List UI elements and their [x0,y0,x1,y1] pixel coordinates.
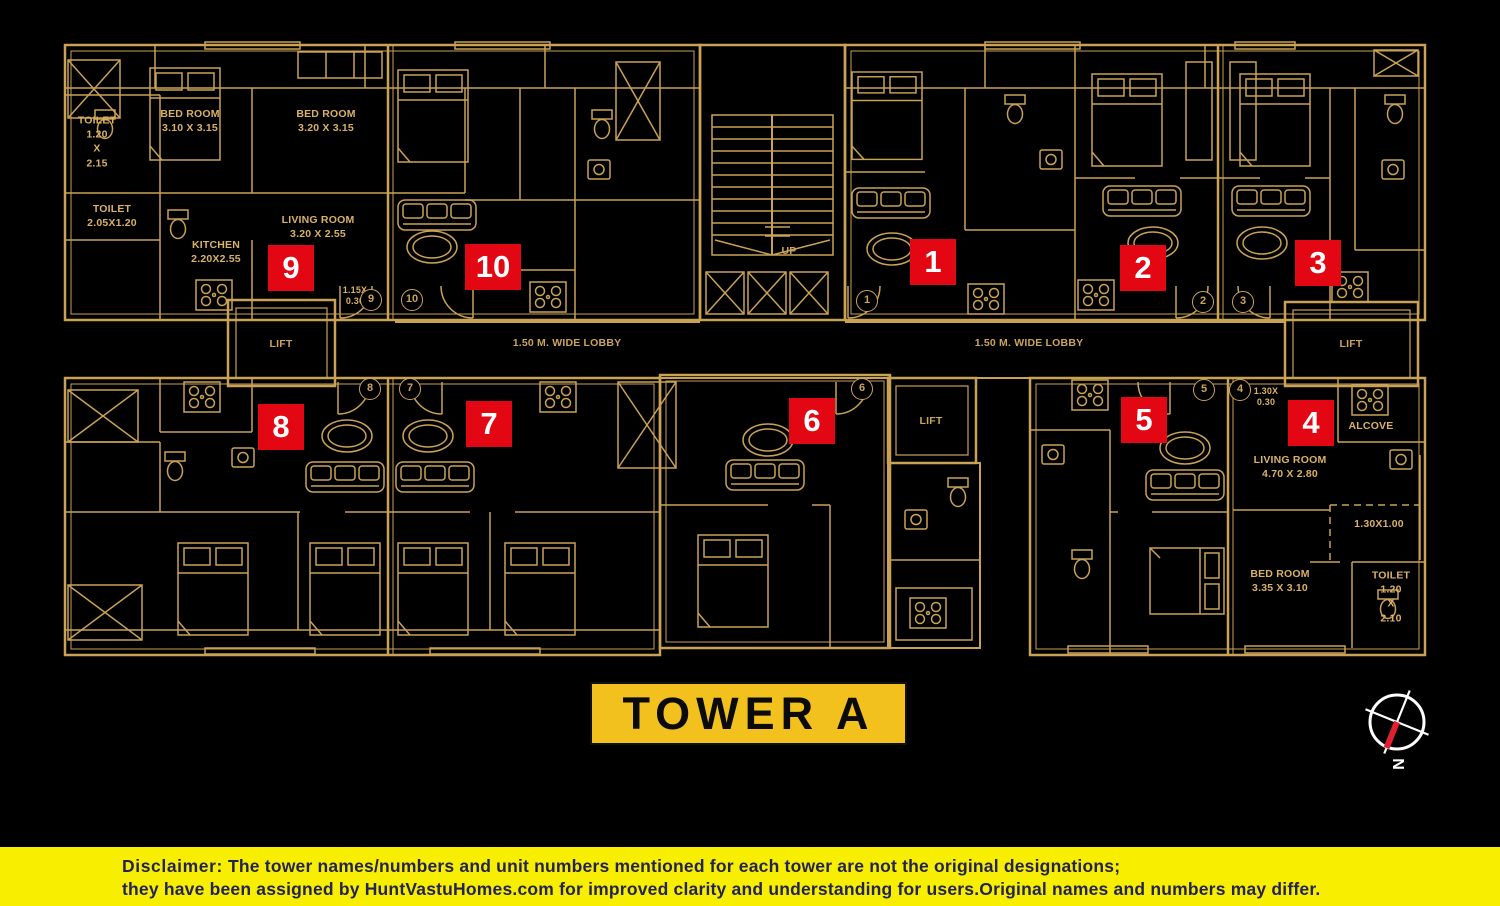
room-label-toilet-unit9-small: TOILET 2.05X1.20 [87,202,137,230]
room-label-toilet-unit9-top: TOILET 1.20 X 2.15 [78,114,116,171]
door-marker-10: 10 [401,289,423,311]
door-marker-1: 1 [856,290,878,312]
door-marker-6: 6 [851,378,873,400]
room-label-kitchen-unit9: KITCHEN 2.20X2.55 [191,238,241,266]
tower-banner: TOWER A [590,682,907,745]
room-label-alcove-unit4: ALCOVE [1349,419,1394,433]
lift-right-label: LIFT [1340,337,1363,351]
room-label-bedroom-unit9-left: BED ROOM 3.10 X 3.15 [160,107,219,135]
unit-badge-3: 3 [1295,240,1341,286]
door-marker-3: 3 [1232,291,1254,313]
lift-center-label: LIFT [920,414,943,428]
room-label-bedroom-unit9-right: BED ROOM 3.20 X 3.15 [296,107,355,135]
door-marker-7: 7 [399,378,421,400]
unit-badge-5: 5 [1121,397,1167,443]
door-marker-4: 4 [1229,379,1251,401]
room-label-bedroom-unit4: BED ROOM 3.35 X 3.10 [1250,567,1309,595]
lobby-right-label: 1.50 M. WIDE LOBBY [975,336,1084,350]
lobby-left-label: 1.50 M. WIDE LOBBY [513,336,622,350]
unit-badge-8: 8 [258,404,304,450]
dim-label-unit4-door: 1.30X 0.30 [1254,386,1279,409]
door-marker-8: 8 [359,378,381,400]
unit-badge-6: 6 [789,398,835,444]
door-marker-9: 9 [360,289,382,311]
unit-badge-2: 2 [1120,245,1166,291]
floor-plan-page: TOILET 1.20 X 2.15 BED ROOM 3.10 X 3.15 … [0,0,1500,906]
unit-badge-1: 1 [910,239,956,285]
unit-badge-7: 7 [466,401,512,447]
compass-north-label: N [1388,755,1406,773]
staircase [700,45,845,320]
bottom-left-block [65,378,676,655]
dim-label-unit4-passage: 1.30X1.00 [1354,517,1404,531]
tower-banner-label: TOWER A [623,688,875,740]
stairs-up-label: UP [782,244,797,258]
disclaimer-bar: Disclaimer: The tower names/numbers and … [0,847,1500,906]
top-left-block [65,42,700,320]
unit-badge-4: 4 [1288,400,1334,446]
door-marker-5: 5 [1193,379,1215,401]
room-label-living-unit9: LIVING ROOM 3.20 X 2.55 [282,213,355,241]
disclaimer-line2: they have been assigned by HuntVastuHome… [122,879,1320,899]
room-label-toilet-unit4: TOILET 1.20 X 2.10 [1372,569,1410,626]
lobby-corridor [335,322,1285,378]
door-marker-2: 2 [1192,291,1214,313]
unit-badge-9: 9 [268,245,314,291]
compass-icon [1353,678,1442,767]
room-label-living-unit4: LIVING ROOM 4.70 X 2.80 [1254,453,1327,481]
lift-left-label: LIFT [270,337,293,351]
disclaimer-line1: The tower names/numbers and unit numbers… [223,856,1120,876]
disclaimer-label: Disclaimer: [122,856,223,876]
unit-badge-10: 10 [465,244,521,290]
